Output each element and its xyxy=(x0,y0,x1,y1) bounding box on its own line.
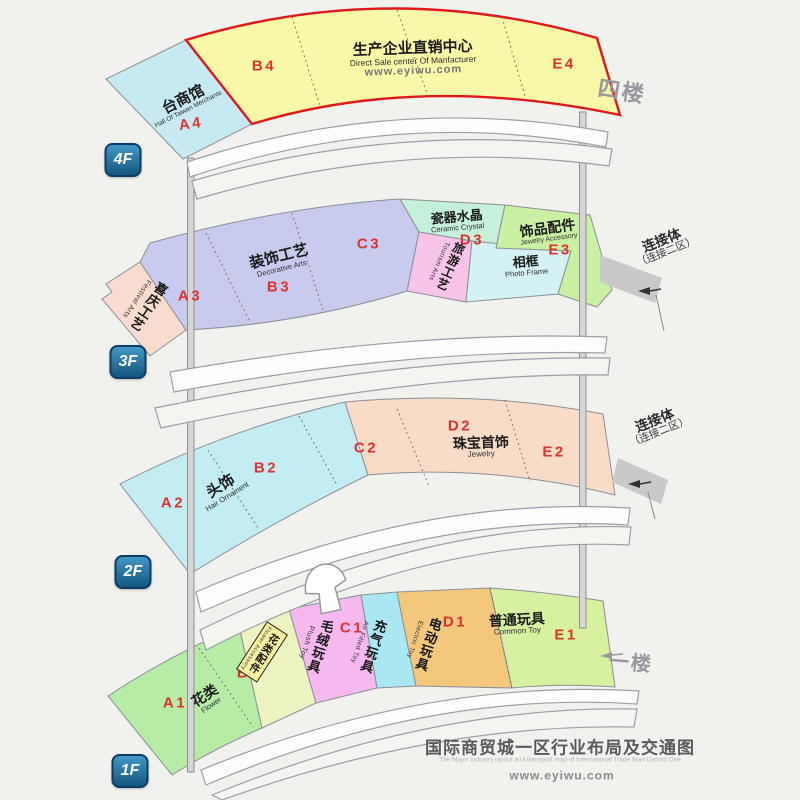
map-subtitle: The Major Industry layout and transport … xyxy=(425,758,695,765)
label-direct-sale-center: 生产企业直销中心 Direct Sale center Of Manfactur… xyxy=(349,39,477,80)
section-common-toy[interactable] xyxy=(490,588,615,688)
badge-3f: 3F xyxy=(110,345,147,379)
badge-1f: 1F xyxy=(112,754,149,788)
code-c3: C3 xyxy=(357,236,381,253)
code-b2: B2 xyxy=(254,460,278,477)
support-pole-left xyxy=(188,158,195,772)
code-a3: A3 xyxy=(178,288,202,305)
label-common-toy: 普通玩具 Common Toy xyxy=(488,611,545,637)
map-title: 国际商贸城一区行业布局及交通图 xyxy=(425,740,695,758)
code-a4: A4 xyxy=(178,114,204,134)
badge-4f: 4F xyxy=(105,143,142,177)
badge-2f: 2F xyxy=(115,555,152,589)
code-e2: E2 xyxy=(542,444,565,461)
code-d1: D1 xyxy=(443,614,467,631)
map-title-block: 国际商贸城一区行业布局及交通图 The Major Industry layou… xyxy=(425,740,695,765)
label-jewelry: 珠宝首饰 Jewelry xyxy=(453,434,510,459)
connector-leader-3f xyxy=(656,295,664,331)
code-a2: A2 xyxy=(161,495,185,512)
floor1-side-label: 一楼 xyxy=(608,645,654,678)
code-b3: B3 xyxy=(267,279,291,296)
trade-mart-floor-map: 4F 3F 2F 1F 四楼 一楼 台商馆 Hall Of Taiwan Mer… xyxy=(0,0,800,800)
website-link[interactable]: www.eyiwu.com xyxy=(509,770,614,783)
label-ceramic-crystal: 瓷器水晶 Ceramic Crystal xyxy=(429,208,484,234)
code-d2: D2 xyxy=(448,418,472,435)
code-e4: E4 xyxy=(552,56,575,73)
code-c2: C2 xyxy=(354,440,378,457)
code-a1: A1 xyxy=(163,695,187,712)
code-e1: E1 xyxy=(554,627,577,644)
code-b4: B4 xyxy=(252,58,276,75)
label-photo-frame: 相框 Photo Frame xyxy=(503,253,548,278)
code-e3: E3 xyxy=(548,242,571,259)
map-canvas xyxy=(0,0,800,800)
